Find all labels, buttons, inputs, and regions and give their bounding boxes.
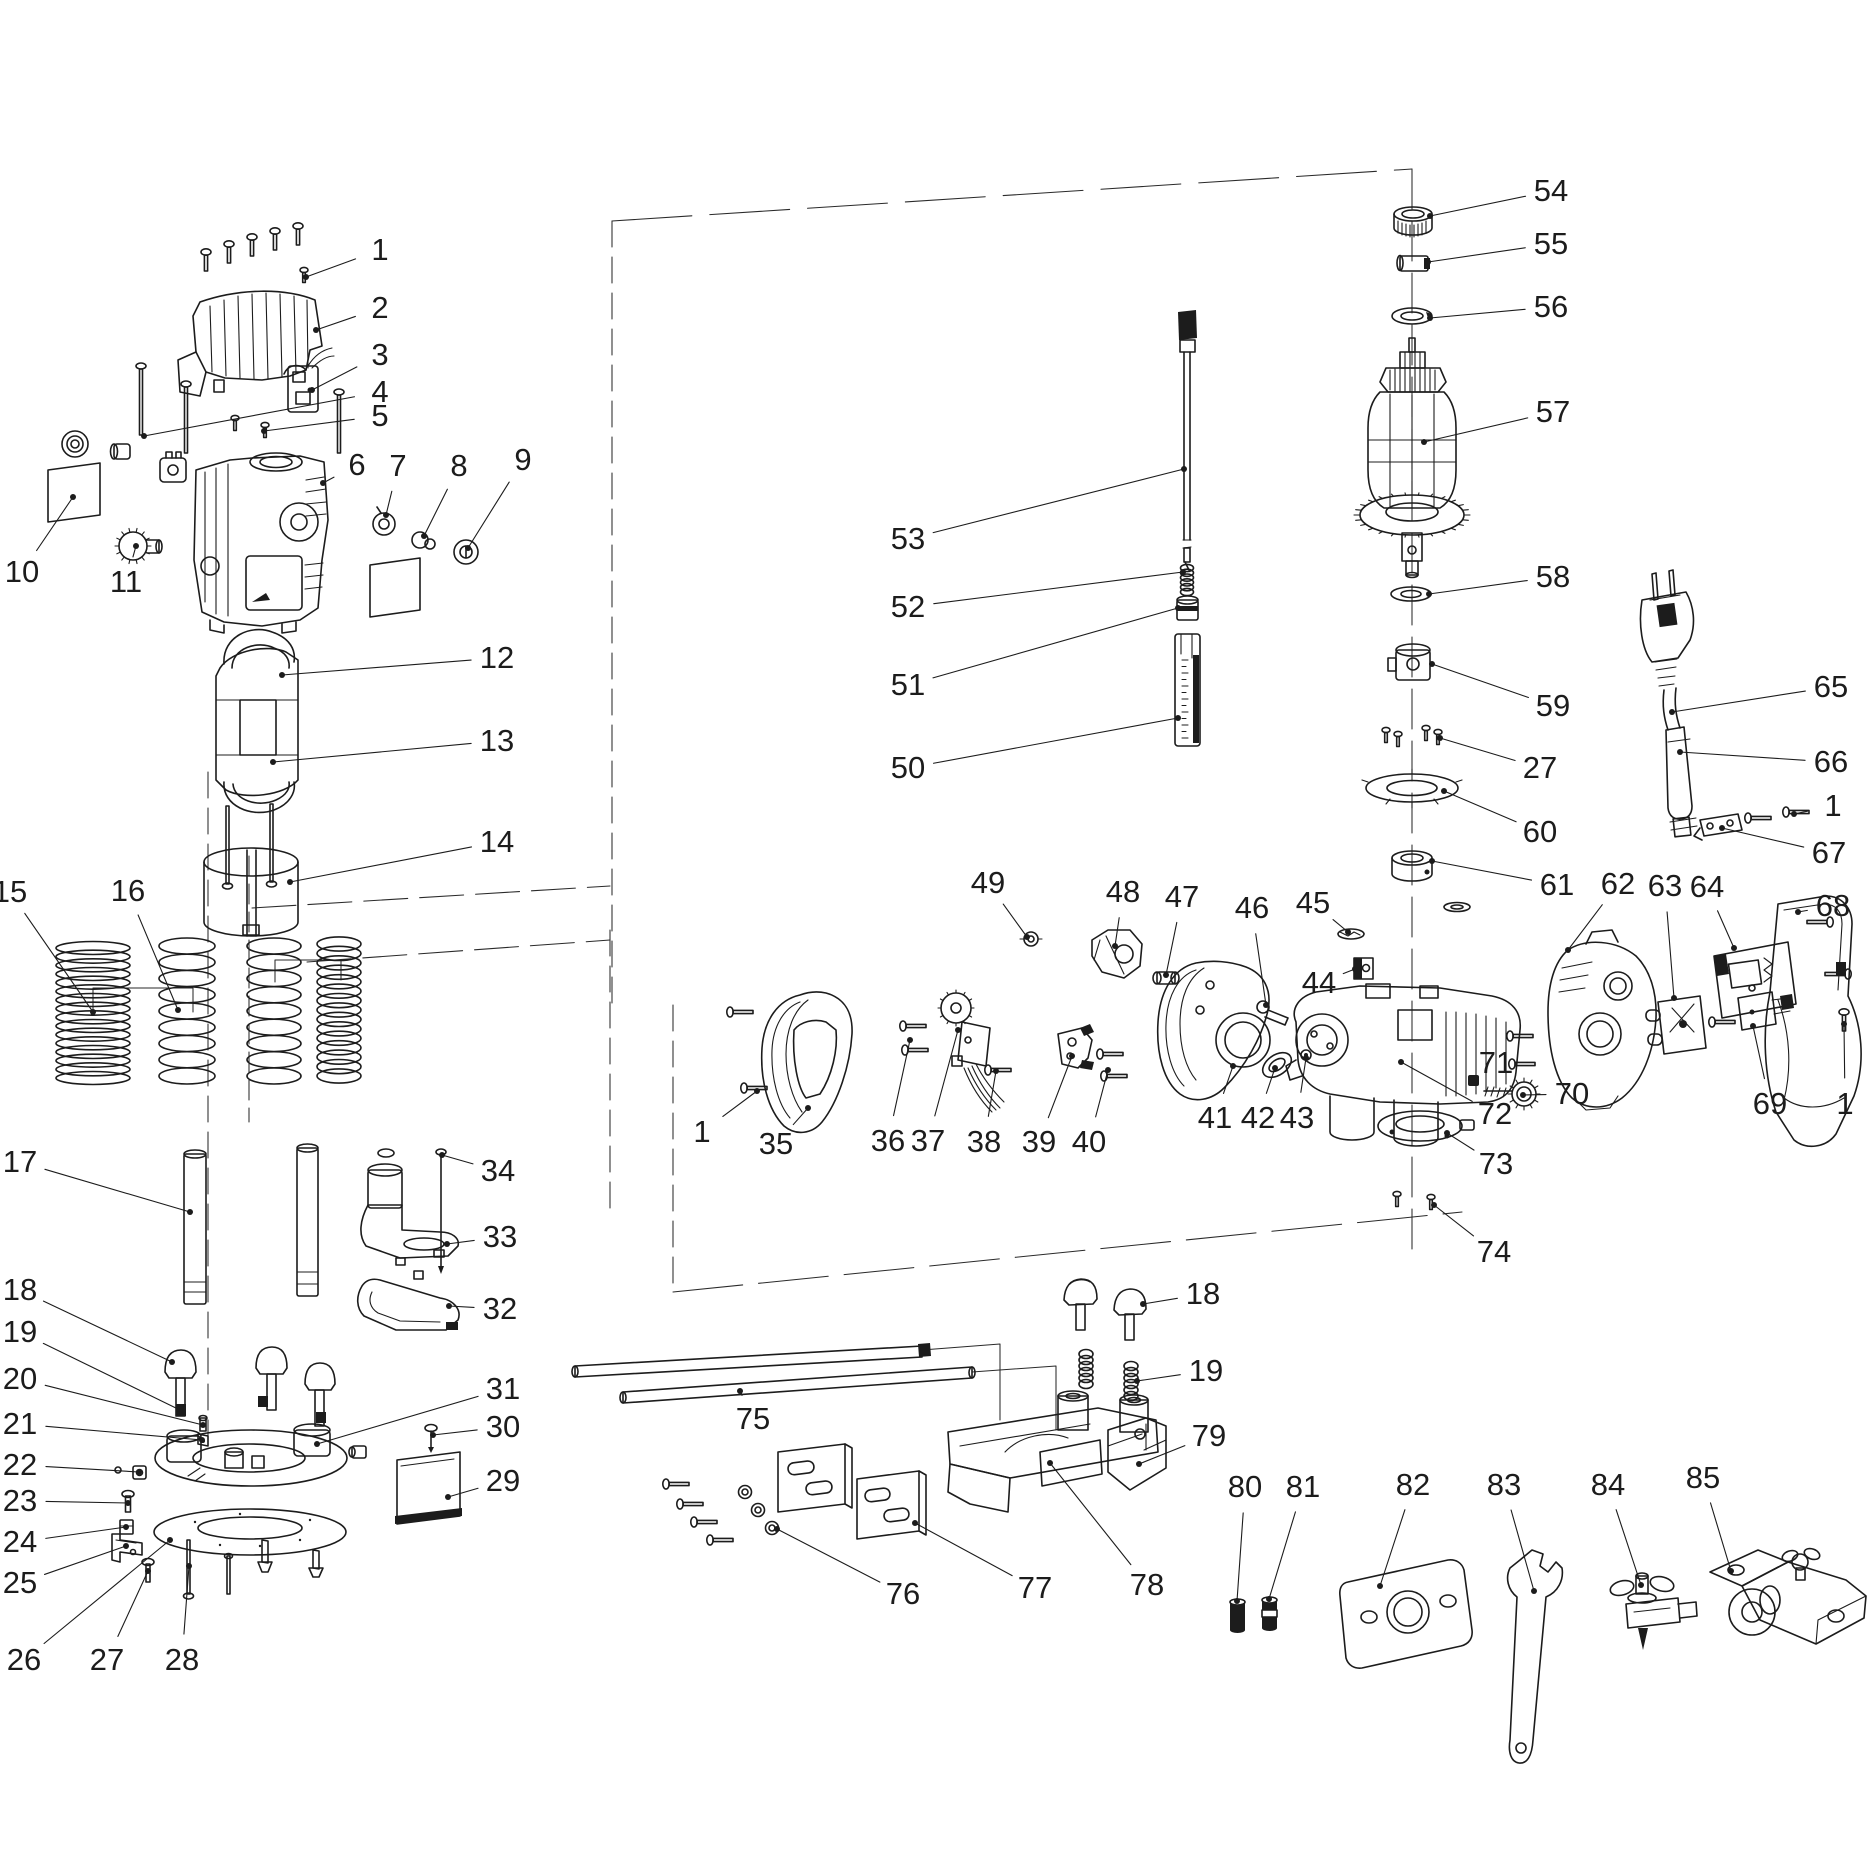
part-number: 38 xyxy=(967,1124,1001,1159)
leader-line xyxy=(442,1155,473,1164)
part-16-spring xyxy=(159,938,215,1084)
part-number: 43 xyxy=(1280,1100,1314,1135)
part-number: 72 xyxy=(1478,1096,1512,1131)
leader-dot xyxy=(993,1068,999,1074)
leader-dot xyxy=(1421,439,1427,445)
leader-dot xyxy=(1841,1021,1847,1027)
part-30-screw xyxy=(425,1425,437,1454)
leader-line xyxy=(386,491,392,515)
part-label-77: 77 xyxy=(912,1520,1052,1605)
part-number: 19 xyxy=(3,1314,37,1349)
part-number: 85 xyxy=(1686,1460,1720,1495)
leader-dot xyxy=(1230,1063,1236,1069)
leader-line xyxy=(447,1240,474,1244)
part-number: 31 xyxy=(486,1371,520,1406)
leader-dot xyxy=(444,1241,450,1247)
leader-line xyxy=(1256,934,1266,1005)
part-label-1: 1 xyxy=(1791,788,1842,823)
part-49-nut xyxy=(1020,932,1042,946)
part-number: 67 xyxy=(1812,835,1846,870)
part-number: 42 xyxy=(1241,1100,1275,1135)
leader-dot xyxy=(912,1520,918,1526)
leader-dot xyxy=(141,433,147,439)
leader-line xyxy=(1753,1026,1764,1079)
part-label-8: 8 xyxy=(421,448,468,539)
leader-dot xyxy=(313,327,319,333)
part-number: 78 xyxy=(1130,1567,1164,1602)
part-label-80: 80 xyxy=(1228,1469,1262,1604)
leader-dot xyxy=(133,543,139,549)
part-73-lock-ring xyxy=(1378,1111,1474,1141)
part-number: 25 xyxy=(3,1565,37,1600)
leader-line xyxy=(46,1426,202,1440)
part-number: 58 xyxy=(1536,559,1570,594)
parts-layer xyxy=(48,207,1866,1763)
leader-line xyxy=(433,1430,477,1435)
part-label-74: 74 xyxy=(1431,1202,1511,1269)
part-number: 7 xyxy=(389,448,406,483)
part-number: 75 xyxy=(736,1401,770,1436)
part-74-screws xyxy=(1393,1191,1435,1209)
part-number: 79 xyxy=(1192,1418,1226,1453)
part-number: 40 xyxy=(1072,1124,1106,1159)
part-85-roller-guide xyxy=(1710,1547,1866,1644)
leader-dot xyxy=(754,1088,760,1094)
part-label-24: 24 xyxy=(3,1524,129,1559)
leader-line xyxy=(934,572,1183,604)
leader-dot xyxy=(1425,259,1431,265)
leader-line xyxy=(118,1571,148,1636)
leader-dot xyxy=(907,1037,913,1043)
leader-dot xyxy=(1024,934,1030,940)
leader-line xyxy=(43,1343,180,1410)
leader-line xyxy=(1166,922,1177,975)
part-number: 28 xyxy=(165,1642,199,1677)
part-number: 48 xyxy=(1106,874,1140,909)
leader-dot xyxy=(200,1422,206,1428)
part-number: 64 xyxy=(1690,869,1724,904)
part-number: 74 xyxy=(1477,1234,1511,1269)
leader-dot xyxy=(1426,591,1432,597)
part-50-scale-rod xyxy=(1175,634,1200,746)
part-label-30: 30 xyxy=(430,1409,520,1444)
part-label-11: 11 xyxy=(110,543,142,599)
part-label-27: 27 xyxy=(90,1568,151,1677)
part-number: 18 xyxy=(1186,1276,1220,1311)
part-77-fence-plate xyxy=(857,1471,926,1539)
part-label-5: 5 xyxy=(261,398,389,434)
part-number: 6 xyxy=(348,447,365,482)
part-number: 2 xyxy=(371,290,388,325)
part-number: 63 xyxy=(1648,868,1682,903)
leader-line xyxy=(1680,752,1805,760)
part-label-46: 46 xyxy=(1235,890,1269,1008)
part-58-washer xyxy=(1391,587,1431,601)
part-65-66-cord-assembly xyxy=(1640,570,1697,837)
part-label-18: 18 xyxy=(1140,1276,1220,1311)
leader-dot xyxy=(125,1500,131,1506)
leader-line xyxy=(1434,1205,1474,1236)
part-number: 35 xyxy=(759,1126,793,1161)
part-label-79: 79 xyxy=(1136,1418,1226,1467)
leader-line xyxy=(46,1467,139,1472)
part-number: 59 xyxy=(1536,688,1570,723)
part-number: 56 xyxy=(1534,289,1568,324)
part-label-7: 7 xyxy=(383,448,407,518)
part-29-sub-base xyxy=(395,1452,462,1524)
part-number: 10 xyxy=(5,554,39,589)
part-label-40: 40 xyxy=(1072,1067,1111,1159)
part-6-motor-housing xyxy=(194,453,328,633)
part-17-columns xyxy=(184,1144,318,1304)
leader-dot xyxy=(1427,315,1433,321)
leader-line xyxy=(1432,664,1528,697)
leader-dot xyxy=(1728,1568,1734,1574)
leader-line xyxy=(933,469,1184,533)
part-label-63: 63 xyxy=(1648,868,1682,1001)
leader-line xyxy=(1440,738,1515,761)
leader-dot xyxy=(167,1537,173,1543)
leader-line xyxy=(317,1396,478,1444)
part-label-66: 66 xyxy=(1677,744,1848,779)
part-75-guide-rods xyxy=(572,1343,975,1403)
part-label-48: 48 xyxy=(1106,874,1140,949)
part-80-bushing xyxy=(1230,1599,1245,1633)
construction-line xyxy=(252,886,610,908)
part-26-sole-plate xyxy=(154,1509,346,1555)
part-label-23: 23 xyxy=(3,1483,131,1518)
part-label-78: 78 xyxy=(1047,1460,1164,1602)
part-spring-4 xyxy=(317,937,361,1083)
leader-line xyxy=(1269,1512,1295,1599)
part-12-stator xyxy=(216,630,298,813)
leader-dot xyxy=(123,1543,129,1549)
leader-dot xyxy=(955,1027,961,1033)
part-45-wave-washer xyxy=(1338,929,1364,939)
leader-dot xyxy=(1791,811,1797,817)
part-label-67: 67 xyxy=(1719,825,1846,870)
part-number: 77 xyxy=(1018,1570,1052,1605)
leader-line xyxy=(46,1527,126,1538)
part-label-56: 56 xyxy=(1427,289,1568,324)
leader-dot xyxy=(187,1209,193,1215)
leader-dot xyxy=(199,1437,205,1443)
leader-dot xyxy=(175,1007,181,1013)
part-35-handle-left xyxy=(727,992,852,1132)
part-number: 39 xyxy=(1022,1124,1056,1159)
part-number: 80 xyxy=(1228,1469,1262,1504)
part-number: 52 xyxy=(891,589,925,624)
part-48-spindle-lock xyxy=(1092,930,1142,978)
part-number: 61 xyxy=(1540,867,1574,902)
leader-line xyxy=(1844,1024,1845,1078)
leader-dot xyxy=(1345,929,1351,935)
part-label-42: 42 xyxy=(1241,1065,1278,1135)
leader-line xyxy=(1710,1503,1731,1571)
part-number: 47 xyxy=(1165,879,1199,914)
part-label-39: 39 xyxy=(1022,1053,1075,1159)
part-label-53: 53 xyxy=(891,466,1187,556)
leader-line xyxy=(424,489,447,536)
leader-dot xyxy=(383,512,389,518)
part-1-screw-set xyxy=(201,223,308,283)
part-label-19: 19 xyxy=(1134,1353,1223,1388)
part-label-73: 73 xyxy=(1444,1130,1513,1181)
part-27-28-screws xyxy=(142,1540,323,1599)
part-number: 71 xyxy=(1479,1045,1513,1080)
leader-dot xyxy=(430,1432,436,1438)
leader-line xyxy=(1430,196,1526,216)
construction-line xyxy=(612,169,1412,221)
part-number: 62 xyxy=(1601,866,1635,901)
part-number: 13 xyxy=(480,723,514,758)
leader-dot xyxy=(279,672,285,678)
leader-dot xyxy=(169,1359,175,1365)
part-number: 44 xyxy=(1302,965,1336,1000)
leader-line xyxy=(144,397,354,436)
part-number: 19 xyxy=(1189,1353,1223,1388)
part-59-block xyxy=(1388,644,1430,680)
part-number: 66 xyxy=(1814,744,1848,779)
part-number: 50 xyxy=(891,750,925,785)
part-label-84: 84 xyxy=(1591,1467,1644,1588)
leader-line xyxy=(1722,828,1804,847)
leader-line xyxy=(273,743,471,762)
part-number: 16 xyxy=(111,873,145,908)
part-78-fence-body xyxy=(948,1391,1158,1512)
leader-line xyxy=(44,1540,170,1643)
part-label-10: 10 xyxy=(5,494,76,589)
leader-dot xyxy=(1175,605,1181,611)
leader-dot xyxy=(1429,661,1435,667)
part-label-55: 55 xyxy=(1425,226,1568,265)
part-63-terminal-block xyxy=(1646,996,1735,1054)
leader-dot xyxy=(1750,1023,1756,1029)
part-7-button xyxy=(373,507,395,535)
part-label-82: 82 xyxy=(1377,1467,1430,1589)
part-number: 84 xyxy=(1591,1467,1625,1502)
part-number: 17 xyxy=(3,1144,37,1179)
leader-line xyxy=(915,1523,1012,1576)
part-label-36: 36 xyxy=(871,1037,913,1158)
part-number: 27 xyxy=(1523,750,1557,785)
leader-dot xyxy=(1471,1076,1477,1082)
leader-line xyxy=(1447,1133,1474,1150)
part-32-dust-hood-lower xyxy=(358,1271,459,1330)
leader-line xyxy=(449,1306,474,1307)
part-label-60: 60 xyxy=(1441,788,1557,849)
leader-dot xyxy=(287,879,293,885)
part-83-wrench xyxy=(1508,1550,1563,1763)
leader-dot xyxy=(1069,1053,1075,1059)
part-18b-knobs xyxy=(1064,1279,1146,1340)
part-label-17: 17 xyxy=(3,1144,193,1215)
leader-line xyxy=(777,1529,880,1582)
part-label-83: 83 xyxy=(1487,1467,1537,1594)
leader-dot xyxy=(446,1303,452,1309)
part-84-centering-pin xyxy=(1609,1573,1697,1650)
part-number: 51 xyxy=(891,667,925,702)
exploded-diagram-canvas: 1234567891011121314151617181920212223242… xyxy=(0,0,1871,1872)
part-9-cap xyxy=(454,540,478,564)
part-40-screws xyxy=(1097,1049,1127,1081)
leader-dot xyxy=(270,759,276,765)
leader-line xyxy=(316,316,355,330)
part-label-29: 29 xyxy=(445,1463,520,1500)
part-number: 26 xyxy=(7,1642,41,1677)
part-number: 68 xyxy=(1816,888,1850,923)
part-nameplate-right xyxy=(370,558,420,617)
leader-dot xyxy=(320,480,326,486)
part-label-49: 49 xyxy=(971,865,1030,940)
leader-dot xyxy=(1136,1461,1142,1467)
leader-dot xyxy=(136,1469,142,1475)
part-number: 53 xyxy=(891,521,925,556)
leader-dot xyxy=(1719,825,1725,831)
part-label-69: 69 xyxy=(1750,1023,1787,1121)
leader-line xyxy=(37,497,73,550)
leader-line xyxy=(448,1488,478,1497)
leader-line xyxy=(46,1501,128,1503)
leader-line xyxy=(1380,1510,1405,1586)
leader-line xyxy=(723,1091,757,1116)
leader-dot xyxy=(1047,1460,1053,1466)
part-label-27: 27 xyxy=(1437,735,1557,785)
construction-line xyxy=(673,1212,1462,1292)
leader-line xyxy=(1718,911,1734,948)
part-number: 5 xyxy=(371,398,388,433)
part-64-brush-module xyxy=(1714,942,1796,1018)
construction-line xyxy=(972,1366,1056,1430)
leader-dot xyxy=(1638,1582,1644,1588)
part-number: 15 xyxy=(0,874,27,909)
part-number: 37 xyxy=(911,1123,945,1158)
construction-lines-layer xyxy=(93,169,1462,1448)
part-14-clamp-ring xyxy=(204,848,298,936)
part-bearing-and-bushes xyxy=(62,431,186,482)
part-number: 49 xyxy=(971,865,1005,900)
part-label-13: 13 xyxy=(270,723,514,765)
part-label-12: 12 xyxy=(279,640,514,678)
leader-line xyxy=(468,482,509,548)
part-label-2: 2 xyxy=(313,290,389,333)
exploded-parts-diagram-page: 1234567891011121314151617181920212223242… xyxy=(0,0,1871,1872)
leader-line xyxy=(1430,309,1525,318)
leader-dot xyxy=(737,1388,743,1394)
part-label-64: 64 xyxy=(1690,869,1737,951)
part-number: 23 xyxy=(3,1483,37,1518)
leader-dot xyxy=(1112,943,1118,949)
part-10-label-plate xyxy=(48,463,100,522)
part-label-1: 1 xyxy=(693,1088,760,1149)
leader-line xyxy=(1432,861,1531,880)
part-label-34: 34 xyxy=(439,1152,515,1188)
leader-dot xyxy=(1263,1002,1269,1008)
leader-dot xyxy=(1140,1301,1146,1307)
part-number: 1 xyxy=(371,232,388,267)
part-label-65: 65 xyxy=(1669,669,1848,715)
leader-dot xyxy=(186,1563,192,1569)
leader-line xyxy=(282,660,471,675)
leader-dot xyxy=(1441,788,1447,794)
leader-dot xyxy=(90,1009,96,1015)
part-number: 30 xyxy=(486,1409,520,1444)
leader-dot xyxy=(774,1526,780,1532)
part-number: 81 xyxy=(1286,1469,1320,1504)
part-18-knob-set xyxy=(165,1347,335,1426)
leader-line xyxy=(306,259,356,277)
leader-line xyxy=(933,608,1178,678)
part-number: 3 xyxy=(371,337,388,372)
part-76-fence-plate xyxy=(778,1444,852,1512)
part-number: 46 xyxy=(1235,890,1269,925)
leader-line xyxy=(1143,1298,1177,1304)
part-label-54: 54 xyxy=(1427,173,1568,219)
leader-dot xyxy=(805,1105,811,1111)
leader-dot xyxy=(177,1407,183,1413)
leader-dot xyxy=(1427,213,1433,219)
part-number: 27 xyxy=(90,1642,124,1677)
leader-dot xyxy=(1565,947,1571,953)
part-number: 20 xyxy=(3,1361,37,1396)
leader-dot xyxy=(1180,569,1186,575)
leader-dot xyxy=(1731,945,1737,951)
part-number: 57 xyxy=(1536,394,1570,429)
leader-line xyxy=(1237,1513,1243,1601)
leader-line xyxy=(1672,691,1805,712)
part-55-spacer xyxy=(1397,256,1430,272)
part-54-gear xyxy=(1394,207,1432,237)
part-81-bushing xyxy=(1262,1597,1277,1631)
part-42-cam-cap xyxy=(1258,1048,1296,1083)
part-label-51: 51 xyxy=(891,605,1181,702)
leader-line xyxy=(1667,912,1674,998)
leader-dot xyxy=(1429,858,1435,864)
part-number: 41 xyxy=(1198,1100,1232,1135)
part-number: 54 xyxy=(1534,173,1568,208)
part-label-68: 68 xyxy=(1795,888,1850,923)
part-label-85: 85 xyxy=(1686,1460,1734,1574)
part-82-template-guide xyxy=(1340,1560,1472,1668)
leader-dot xyxy=(445,1494,451,1500)
part-39-plate xyxy=(1058,1024,1094,1070)
leader-dot xyxy=(1444,1130,1450,1136)
leader-dot xyxy=(1531,1588,1537,1594)
leader-dot xyxy=(1266,1596,1272,1602)
leader-dot xyxy=(314,1441,320,1447)
part-number: 1 xyxy=(1836,1086,1853,1121)
leader-line xyxy=(1003,904,1027,937)
construction-line xyxy=(922,1344,1000,1420)
part-number: 34 xyxy=(481,1153,515,1188)
leader-dot xyxy=(465,545,471,551)
part-53-depth-rod xyxy=(1178,310,1197,570)
leader-dot xyxy=(1669,709,1675,715)
part-number: 1 xyxy=(693,1114,710,1149)
part-label-44: 44 xyxy=(1302,965,1358,1000)
leader-dot xyxy=(1795,909,1801,915)
leader-dot xyxy=(1377,1583,1383,1589)
part-fence-screws xyxy=(663,1479,779,1545)
leader-dot xyxy=(70,494,76,500)
leader-dot xyxy=(1181,466,1187,472)
part-label-61: 61 xyxy=(1429,858,1574,902)
leader-line xyxy=(1096,1070,1108,1117)
part-label-52: 52 xyxy=(891,569,1186,624)
leader-dot xyxy=(309,387,315,393)
leader-dot xyxy=(123,1524,129,1530)
leader-line xyxy=(1429,581,1527,594)
